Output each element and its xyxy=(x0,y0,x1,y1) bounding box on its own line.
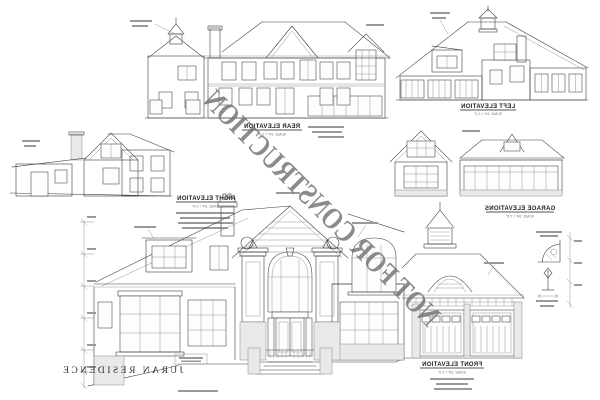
right-elevation-label: RIGHT ELEVATION xyxy=(177,196,235,202)
drawing-sheet: LEFT ELEVATION SCALE: 1/4" = 1'-0" xyxy=(0,0,600,400)
right-elevation-drawing xyxy=(10,132,174,196)
detail-drawings xyxy=(536,231,582,308)
garage-elevations-scale: SCALE: 1/4" = 1'-0" xyxy=(506,215,534,219)
dimension-string xyxy=(80,216,96,389)
mirrored-plan-canvas: LEFT ELEVATION SCALE: 1/4" = 1'-0" xyxy=(0,0,600,400)
garage-elevations-drawing xyxy=(390,130,564,196)
garage-door-left xyxy=(470,310,514,356)
left-elevation-label: LEFT ELEVATION xyxy=(461,104,515,110)
left-elevation-cupola-icon xyxy=(479,6,497,32)
right-elevation-notes xyxy=(176,212,234,229)
left-elevation-drawing xyxy=(396,6,588,100)
corbel-detail-icon xyxy=(536,231,562,262)
project-title: JURAN RESIDENCE xyxy=(61,366,184,376)
finial-detail-icon xyxy=(536,268,558,307)
door-tag xyxy=(175,354,207,364)
entry-arch-window xyxy=(268,252,312,312)
front-cupola-icon xyxy=(424,202,456,248)
entry-pilaster-right xyxy=(238,240,268,360)
entry-pilaster-left xyxy=(312,240,342,360)
rear-elevation-drawing xyxy=(130,18,390,138)
elevation-sheet-svg: LEFT ELEVATION SCALE: 1/4" = 1'-0" xyxy=(0,0,600,400)
front-elevation-scale: SCALE: 1/4" = 1'-0" xyxy=(438,371,466,375)
right-elevation-scale: SCALE: 1/4" = 1'-0" xyxy=(192,205,220,209)
left-elevation-scale: SCALE: 1/4" = 1'-0" xyxy=(474,112,502,116)
front-elevation-label: FRONT ELEVATION xyxy=(422,362,482,368)
garage-elevations-label: GARAGE ELEVATIONS xyxy=(485,206,556,212)
front-elevation-notes xyxy=(430,378,474,390)
